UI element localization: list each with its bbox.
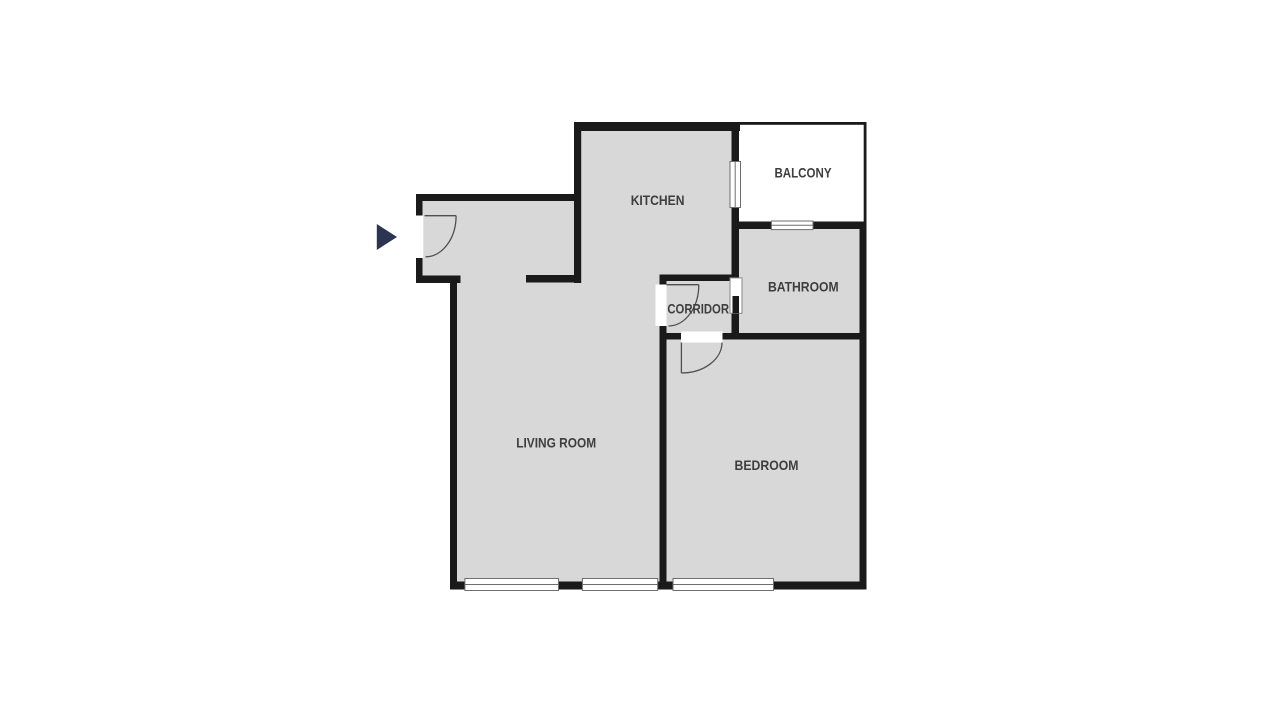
svg-text:BATHROOM: BATHROOM: [768, 279, 839, 295]
svg-text:CORRIDOR: CORRIDOR: [667, 301, 729, 317]
svg-text:BALCONY: BALCONY: [774, 164, 832, 180]
svg-text:LIVING ROOM: LIVING ROOM: [516, 435, 596, 451]
svg-text:KITCHEN: KITCHEN: [631, 192, 685, 208]
svg-text:BEDROOM: BEDROOM: [735, 457, 799, 473]
